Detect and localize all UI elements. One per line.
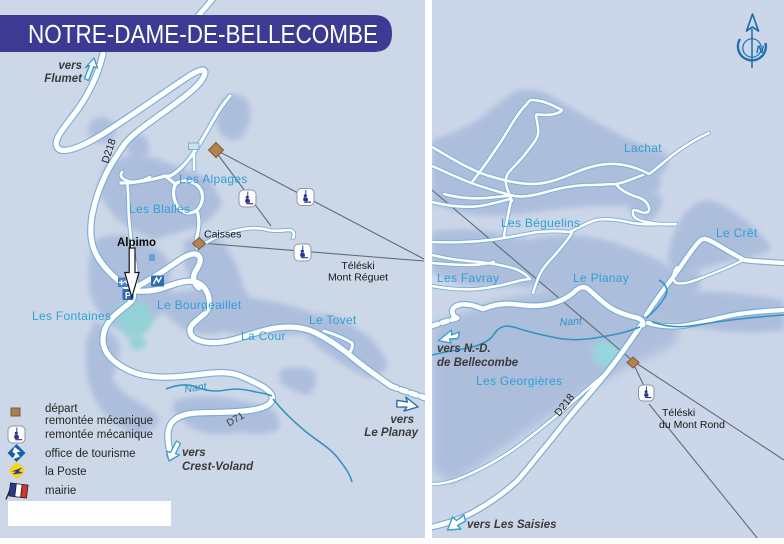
svg-text:Les Béguelins: Les Béguelins bbox=[501, 216, 580, 230]
svg-text:Les Blalles: Les Blalles bbox=[129, 202, 190, 216]
svg-text:Les Favray: Les Favray bbox=[437, 271, 499, 285]
svg-text:départ: départ bbox=[45, 403, 78, 415]
svg-text:Flumet: Flumet bbox=[44, 73, 83, 85]
svg-text:vers: vers bbox=[58, 60, 82, 72]
svg-text:remontée mécanique: remontée mécanique bbox=[45, 429, 153, 441]
svg-text:Les Fontaines: Les Fontaines bbox=[32, 309, 111, 323]
svg-text:Le Tovet: Le Tovet bbox=[309, 313, 357, 327]
svg-text:La Cour: La Cour bbox=[241, 329, 286, 343]
svg-text:vers: vers bbox=[390, 414, 414, 426]
svg-text:Lachat: Lachat bbox=[624, 141, 662, 155]
svg-text:Le Bourgeaillet: Le Bourgeaillet bbox=[157, 298, 242, 312]
svg-text:Nant: Nant bbox=[559, 315, 583, 329]
svg-text:de Bellecombe: de Bellecombe bbox=[437, 357, 519, 369]
svg-text:la Poste: la Poste bbox=[45, 466, 87, 478]
svg-text:Les Alpages: Les Alpages bbox=[179, 172, 248, 186]
svg-text:Caisses: Caisses bbox=[204, 229, 241, 241]
svg-text:mairie: mairie bbox=[45, 485, 76, 497]
svg-text:Téléski: Téléski bbox=[341, 260, 374, 272]
svg-text:Le Planay: Le Planay bbox=[364, 427, 418, 439]
svg-text:Crest-Voland: Crest-Voland bbox=[182, 461, 254, 473]
svg-text:vers: vers bbox=[182, 447, 206, 459]
svg-text:remontée mécanique: remontée mécanique bbox=[45, 415, 153, 427]
svg-text:Les Georgières: Les Georgières bbox=[476, 374, 562, 388]
svg-text:Le Crêt: Le Crêt bbox=[716, 226, 758, 240]
svg-text:office de tourisme: office de tourisme bbox=[45, 448, 136, 460]
svg-text:Le Planay: Le Planay bbox=[573, 271, 629, 285]
svg-text:Alpimo: Alpimo bbox=[117, 237, 156, 249]
svg-text:Mont Réguet: Mont Réguet bbox=[328, 272, 388, 284]
svg-text:vers Les Saisies: vers Les Saisies bbox=[467, 519, 557, 531]
svg-text:Téléski: Téléski bbox=[662, 407, 695, 419]
svg-text:N: N bbox=[756, 44, 765, 56]
svg-text:du Mont Rond: du Mont Rond bbox=[659, 419, 725, 431]
svg-text:vers N.-D.: vers N.-D. bbox=[437, 343, 491, 355]
svg-text:NOTRE-DAME-DE-BELLECOMBE: NOTRE-DAME-DE-BELLECOMBE bbox=[28, 19, 378, 49]
